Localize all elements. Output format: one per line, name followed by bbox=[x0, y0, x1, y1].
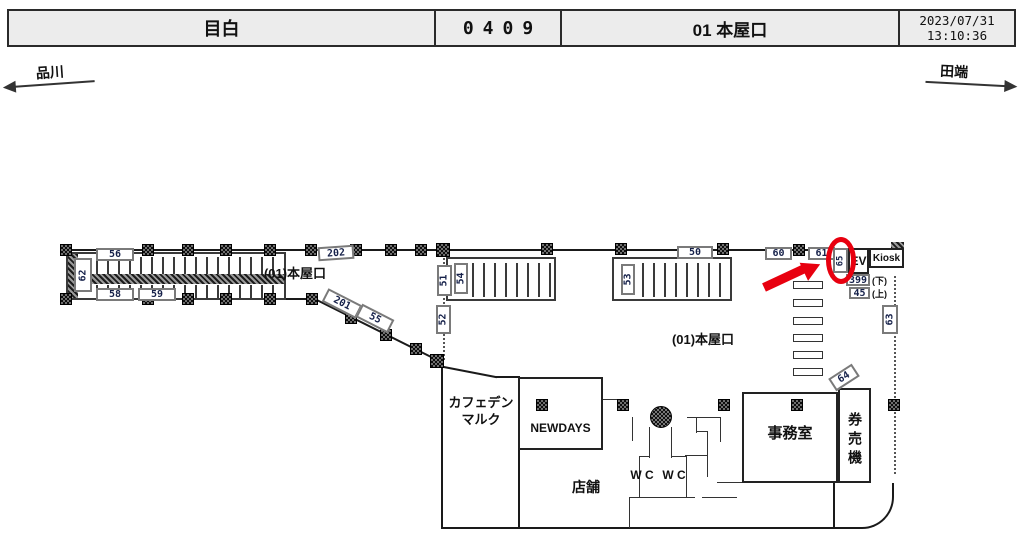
camera-label-53[interactable]: 53 bbox=[621, 264, 635, 295]
camera-label-52[interactable]: 52 bbox=[436, 305, 451, 334]
note-up: (上) bbox=[872, 287, 894, 300]
cafe-label: カフェデン マルク bbox=[441, 394, 521, 428]
pillar-column bbox=[436, 243, 450, 257]
datetime: 2023/07/31 13:10:36 bbox=[898, 11, 1014, 45]
newdays-label: NEWDAYS bbox=[520, 421, 601, 435]
wall-segment bbox=[629, 497, 630, 528]
cafe-line2: マルク bbox=[461, 412, 500, 427]
wall-segment bbox=[720, 417, 721, 442]
pillar-column bbox=[182, 293, 194, 305]
camera-label-56[interactable]: 56 bbox=[96, 248, 134, 261]
pillar-column bbox=[220, 244, 232, 256]
wall-segment bbox=[441, 527, 835, 529]
pillar-column bbox=[717, 243, 729, 255]
pillar-column bbox=[182, 244, 194, 256]
shop-label: 店舗 bbox=[556, 477, 616, 497]
camera-label-62[interactable]: 62 bbox=[74, 258, 92, 292]
pillar-column bbox=[536, 399, 548, 411]
wall-segment bbox=[649, 427, 650, 458]
time-text: 13:10:36 bbox=[927, 28, 987, 43]
ticket-gate bbox=[793, 299, 823, 307]
camera-map-viewer: 目白 0409 01 本屋口 2023/07/31 13:10:36 品川 田端 bbox=[0, 0, 1024, 547]
wall-segment bbox=[671, 456, 687, 457]
round-pillar bbox=[650, 406, 672, 428]
note-down: (下) bbox=[872, 274, 894, 287]
pillar-column bbox=[541, 243, 553, 255]
wall-segment bbox=[702, 497, 737, 498]
right-station-label: 田端 bbox=[940, 61, 1007, 84]
pillar-column bbox=[793, 244, 805, 256]
ticket-machine-label: 券売機 bbox=[845, 400, 865, 480]
camera-label-58[interactable]: 58 bbox=[96, 288, 134, 301]
pillar-column bbox=[264, 293, 276, 305]
ticket-gate bbox=[793, 368, 823, 376]
wall-segment bbox=[707, 455, 708, 477]
pillar-column bbox=[718, 399, 730, 411]
camera-label-45[interactable]: 45 bbox=[849, 287, 870, 299]
ticket-gate bbox=[793, 334, 823, 342]
wall-segment bbox=[629, 497, 695, 498]
header-bar: 目白 0409 01 本屋口 2023/07/31 13:10:36 bbox=[7, 9, 1016, 47]
area-label-corridor: (01)本屋口 bbox=[235, 263, 355, 282]
pillar-column bbox=[220, 293, 232, 305]
pillar-column bbox=[264, 244, 276, 256]
ticket-gate bbox=[793, 317, 823, 325]
pillar-column bbox=[410, 343, 422, 355]
office-label: 事務室 bbox=[742, 422, 838, 443]
newdays-shop bbox=[518, 377, 603, 450]
pillar-column bbox=[305, 244, 317, 256]
station-code: 0409 bbox=[434, 11, 560, 45]
pillar-column bbox=[888, 399, 900, 411]
wc-right-label: W C bbox=[660, 468, 688, 482]
wall-segment bbox=[671, 427, 672, 458]
pillar-column bbox=[306, 293, 318, 305]
wall-segment bbox=[639, 456, 650, 457]
wall-segment bbox=[441, 366, 443, 528]
wall-segment bbox=[717, 482, 743, 483]
pillar-column bbox=[430, 354, 444, 368]
pillar-column bbox=[415, 244, 427, 256]
pillar-column bbox=[617, 399, 629, 411]
wall-segment bbox=[687, 417, 720, 418]
pillar-column bbox=[385, 244, 397, 256]
camera-label-63[interactable]: 63 bbox=[882, 305, 898, 334]
wall-curved-corner bbox=[833, 483, 894, 529]
kiosk: Kiosk bbox=[869, 248, 904, 268]
camera-label-51[interactable]: 51 bbox=[437, 265, 452, 296]
location-title: 01 本屋口 bbox=[560, 11, 898, 45]
pillar-column bbox=[615, 243, 627, 255]
nav-right[interactable]: 田端 bbox=[925, 60, 1006, 87]
ticket-gate bbox=[793, 351, 823, 359]
wall-segment bbox=[444, 366, 497, 378]
wall-segment bbox=[632, 417, 633, 441]
wall-segment bbox=[707, 431, 708, 457]
pillar-column bbox=[60, 244, 72, 256]
annotation-highlight-circle bbox=[826, 237, 856, 284]
pillar-column bbox=[142, 244, 154, 256]
nav-left[interactable]: 品川 bbox=[13, 59, 94, 88]
camera-label-59[interactable]: 59 bbox=[138, 288, 176, 301]
wc-left-label: W C bbox=[628, 468, 656, 482]
wall-segment bbox=[496, 376, 520, 378]
wall-segment bbox=[685, 455, 708, 456]
pillar-column bbox=[791, 399, 803, 411]
left-station-label: 品川 bbox=[35, 59, 94, 83]
cafe-line1: カフェデン bbox=[448, 395, 513, 410]
wall-segment bbox=[518, 450, 520, 528]
area-label-concourse: (01)本屋口 bbox=[643, 329, 763, 348]
pillar-column bbox=[60, 293, 72, 305]
date-text: 2023/07/31 bbox=[919, 13, 994, 28]
camera-label-60[interactable]: 60 bbox=[765, 247, 792, 260]
camera-label-54[interactable]: 54 bbox=[454, 263, 468, 294]
camera-label-50[interactable]: 50 bbox=[677, 246, 713, 259]
camera-label-202[interactable]: 202 bbox=[318, 245, 355, 261]
station-name: 目白 bbox=[9, 11, 434, 45]
ticket-gate bbox=[793, 281, 823, 289]
